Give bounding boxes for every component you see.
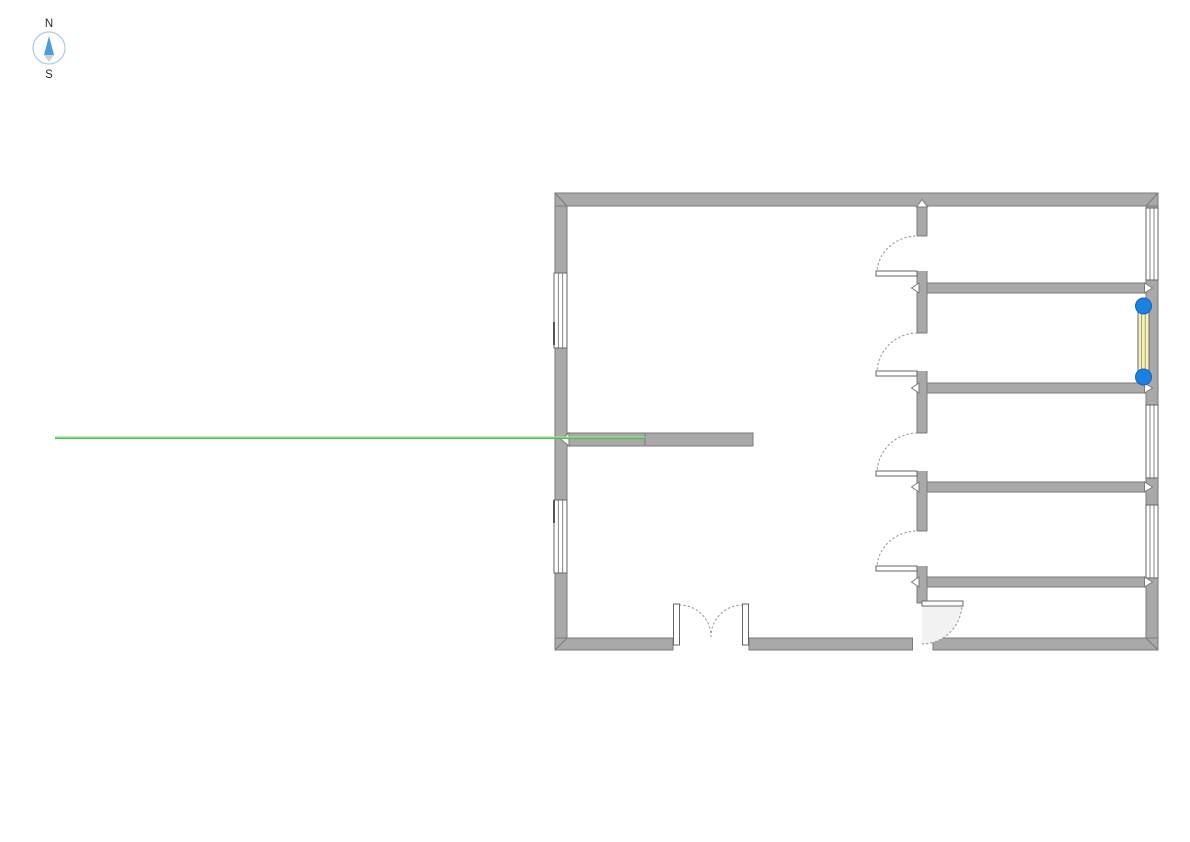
door-swing-arc <box>680 605 712 637</box>
wall-divider-1[interactable] <box>927 283 1146 293</box>
opening-door-1 <box>917 236 928 271</box>
miter-d4-west <box>912 577 920 587</box>
door-room-e3[interactable] <box>876 433 917 476</box>
snap-guide <box>55 437 645 438</box>
window-sash-mark <box>553 500 555 523</box>
floor-plan[interactable] <box>0 0 1190 842</box>
window-east-room-e2-selected[interactable] <box>1136 298 1152 385</box>
wall-west[interactable] <box>555 193 567 650</box>
window-east-room-e3[interactable] <box>1146 405 1158 478</box>
door-leaf-right <box>743 604 749 645</box>
window-west-lower[interactable] <box>553 500 567 573</box>
door-room-e2[interactable] <box>876 333 917 376</box>
door-leaf <box>922 601 963 606</box>
opening-entrance <box>673 637 749 650</box>
door-leaf <box>876 471 917 476</box>
window-sash-mark <box>553 322 555 345</box>
opening-door-2 <box>917 333 928 371</box>
interior-walls[interactable] <box>567 206 1146 603</box>
window-frame <box>1146 405 1158 478</box>
wall-divider-2[interactable] <box>927 383 1146 393</box>
wall-north[interactable] <box>555 193 1158 206</box>
wall-divider-4[interactable] <box>927 577 1146 587</box>
door-leaf <box>876 371 917 376</box>
window-frame <box>554 273 567 348</box>
window-frame <box>554 500 567 573</box>
window-frame <box>1146 208 1158 280</box>
door-swing-arc <box>877 433 917 474</box>
window-east-room-ne[interactable] <box>1146 208 1158 280</box>
miter-d2-west <box>912 383 920 393</box>
door-leaf <box>876 566 917 571</box>
miter-d3-west <box>912 482 920 492</box>
wall-south[interactable] <box>555 638 1158 650</box>
door-swing-arc <box>711 605 743 637</box>
miter-d1-west <box>912 283 920 293</box>
editor-canvas[interactable]: N S <box>0 0 1190 842</box>
door-leaf <box>876 271 917 276</box>
window-east-room-e4[interactable] <box>1146 505 1158 578</box>
wall-middle-stub[interactable] <box>567 433 753 446</box>
door-swing-arc <box>877 333 917 374</box>
window-frame <box>1146 505 1158 578</box>
door-leaf-left <box>674 604 680 645</box>
selection-handle-top[interactable] <box>1136 298 1152 314</box>
opening-door-3 <box>917 433 928 471</box>
selection-handle-bottom[interactable] <box>1136 369 1152 385</box>
door-swing-arc <box>877 531 917 569</box>
opening-door-4 <box>917 531 928 566</box>
door-room-ne[interactable] <box>876 236 917 276</box>
window-west-upper[interactable] <box>553 273 567 348</box>
door-swing-arc <box>877 236 917 274</box>
door-room-e4[interactable] <box>876 531 917 571</box>
wall-divider-3[interactable] <box>927 482 1146 492</box>
